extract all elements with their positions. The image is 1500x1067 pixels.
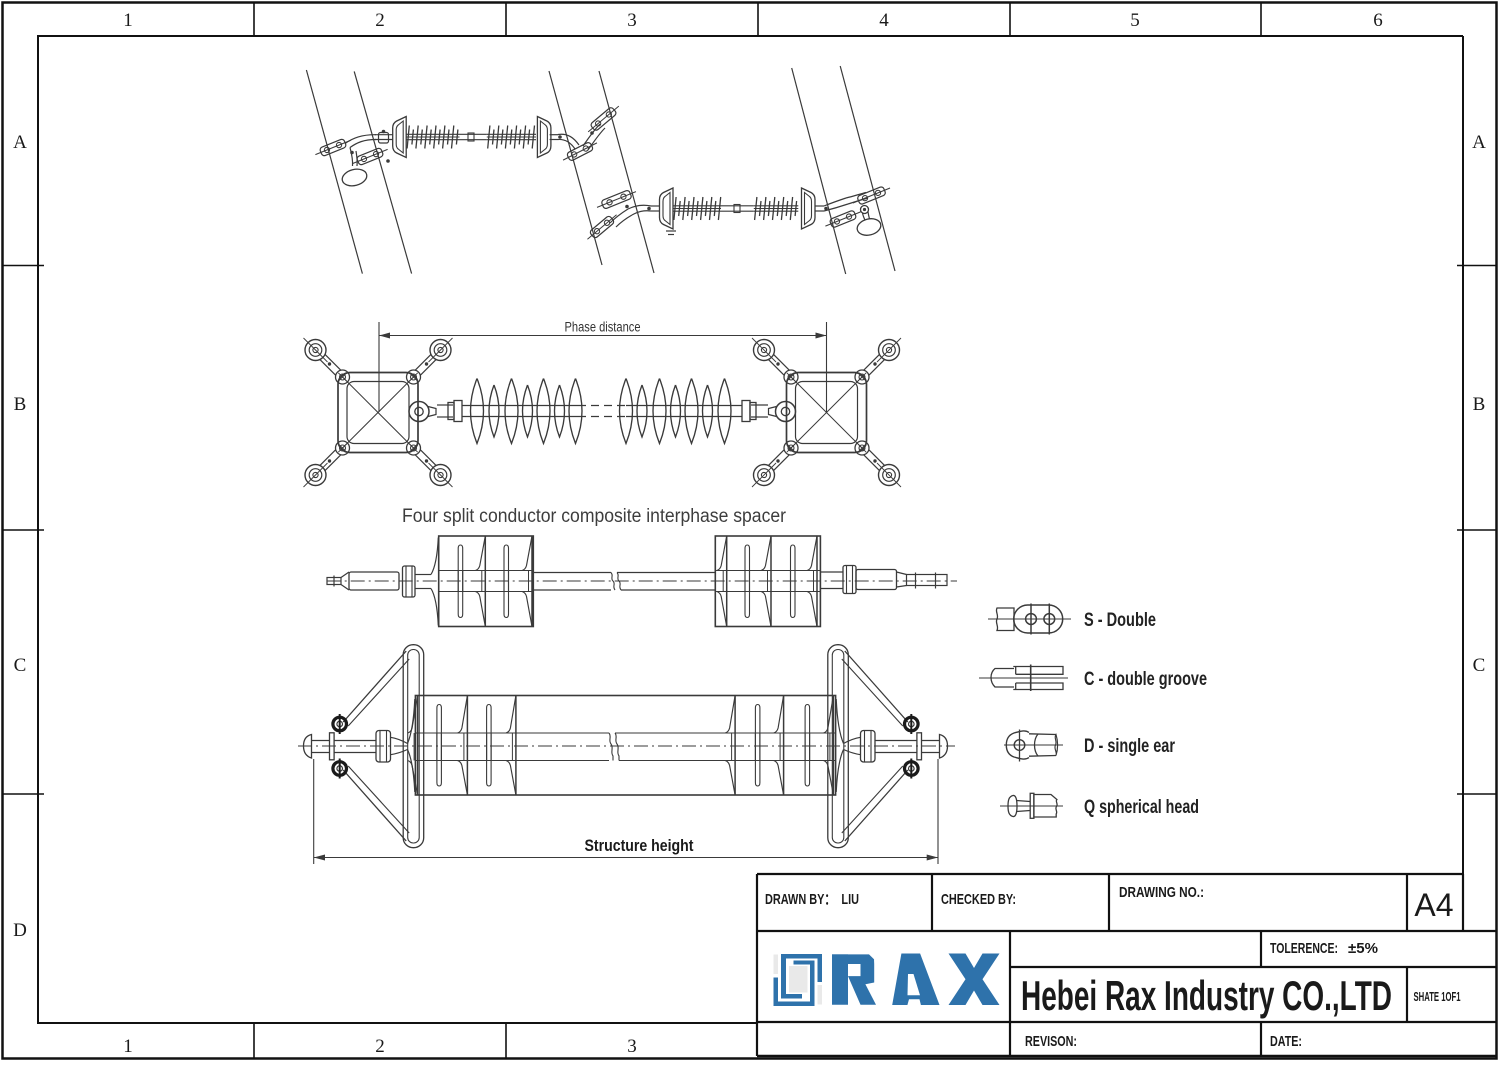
svg-text:C: C — [14, 655, 27, 676]
svg-text:4: 4 — [879, 10, 889, 31]
svg-text:Q spherical head: Q spherical head — [1084, 797, 1199, 818]
svg-text:A: A — [13, 132, 27, 153]
svg-text:DATE:: DATE: — [1270, 1033, 1302, 1050]
svg-text:5: 5 — [1130, 10, 1140, 31]
svg-text:TOLERENCE:: TOLERENCE: — [1270, 940, 1338, 957]
svg-text:C - double groove: C - double groove — [1084, 669, 1207, 690]
svg-text:D - single ear: D - single ear — [1084, 736, 1175, 757]
svg-text:Phase distance: Phase distance — [565, 320, 641, 335]
svg-text:B: B — [1473, 394, 1486, 415]
svg-text:3: 3 — [627, 1036, 637, 1057]
svg-text:D: D — [13, 920, 27, 941]
svg-text:S - Double: S - Double — [1084, 610, 1156, 631]
svg-text:A: A — [1472, 132, 1486, 153]
svg-text:A4: A4 — [1414, 887, 1453, 923]
svg-text:DRAWING NO.:: DRAWING NO.: — [1119, 884, 1204, 901]
svg-text:6: 6 — [1373, 10, 1383, 31]
svg-text:C: C — [1473, 655, 1486, 676]
svg-text:DRAWN BY： LIU: DRAWN BY： LIU — [765, 891, 859, 908]
svg-text:REVISON:: REVISON: — [1025, 1033, 1077, 1050]
svg-text:B: B — [14, 394, 27, 415]
svg-text:Structure height: Structure height — [585, 836, 694, 855]
svg-text:3: 3 — [627, 10, 637, 31]
svg-text:1: 1 — [123, 10, 133, 31]
svg-text:CHECKED BY:: CHECKED BY: — [941, 891, 1016, 908]
svg-text:Four split conductor composite: Four split conductor composite interphas… — [402, 506, 787, 527]
svg-text:2: 2 — [375, 10, 385, 31]
svg-text:Hebei Rax Industry CO.,LTD: Hebei Rax Industry CO.,LTD — [1021, 972, 1392, 1019]
svg-text:1: 1 — [123, 1036, 133, 1057]
svg-text:SHATE 1OF1: SHATE 1OF1 — [1414, 989, 1461, 1004]
svg-text:2: 2 — [375, 1036, 385, 1057]
svg-text:±5%: ±5% — [1348, 940, 1378, 957]
